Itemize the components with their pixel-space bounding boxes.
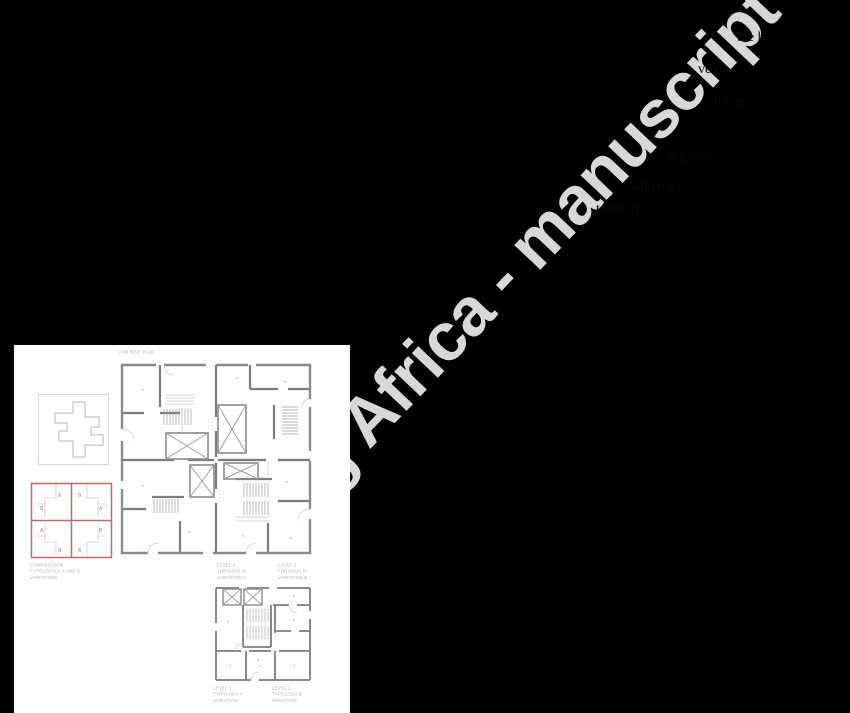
pinwheel-cross-shape: [55, 402, 103, 457]
plan-detail-lines: [235, 605, 297, 680]
composition-grid: [31, 483, 112, 558]
caption-line: Variation B: [278, 575, 307, 581]
ground-floor-plan-svg: [213, 585, 313, 683]
massing-diagram-svg: [37, 393, 111, 467]
body-text-fragment: d a pr: [714, 94, 746, 110]
stair-treads: [247, 609, 268, 639]
body-text-fragment: ve c: [698, 62, 721, 78]
body-text-fragment: to the g: [596, 202, 638, 218]
upper-plan-caption-right: Level 2 Through N Variation B: [278, 562, 307, 581]
caption-line: Variation: [213, 698, 243, 704]
body-text-fragment: ing a co: [668, 148, 712, 164]
body-text-fragment: and o g: [634, 178, 675, 194]
ground-plan-caption-left: Level 1 Typology A Variation: [213, 685, 243, 704]
plan-core-walls: [216, 605, 310, 680]
svg-text:A: A: [58, 493, 62, 499]
ground-plan-caption-right: Level 1 Typology B Variation: [272, 685, 302, 704]
composition-diagram-svg: A B B A A B B A: [30, 482, 113, 559]
upper-plan-caption-left: Level 2 Through N Variation A: [217, 562, 246, 581]
caption-line: Variation: [272, 698, 302, 704]
svg-text:B: B: [78, 493, 82, 499]
caption-line: Variation A: [217, 575, 246, 581]
svg-text:B: B: [99, 528, 103, 534]
plan-title-label: LOW RISE PLAN: [118, 349, 155, 355]
manuscript-page: { "watermark": { "text": "ng Africa - ma…: [0, 0, 850, 713]
svg-text:B: B: [58, 548, 62, 554]
plan-core-walls: [122, 365, 310, 553]
upper-floor-plan-svg: [118, 361, 314, 559]
caption-line: Variations: [30, 575, 80, 581]
svg-text:A: A: [40, 528, 44, 534]
composition-caption: Composition Typologies A and B Variation…: [30, 562, 80, 581]
svg-text:B: B: [40, 506, 44, 512]
figure-panel: A B B A A B B A Composition Typologies A…: [14, 345, 350, 713]
shaft-x-boxes: [223, 589, 262, 605]
svg-text:A: A: [99, 506, 103, 512]
svg-text:A: A: [78, 548, 82, 554]
body-text-fragment: the h: [737, 30, 765, 46]
